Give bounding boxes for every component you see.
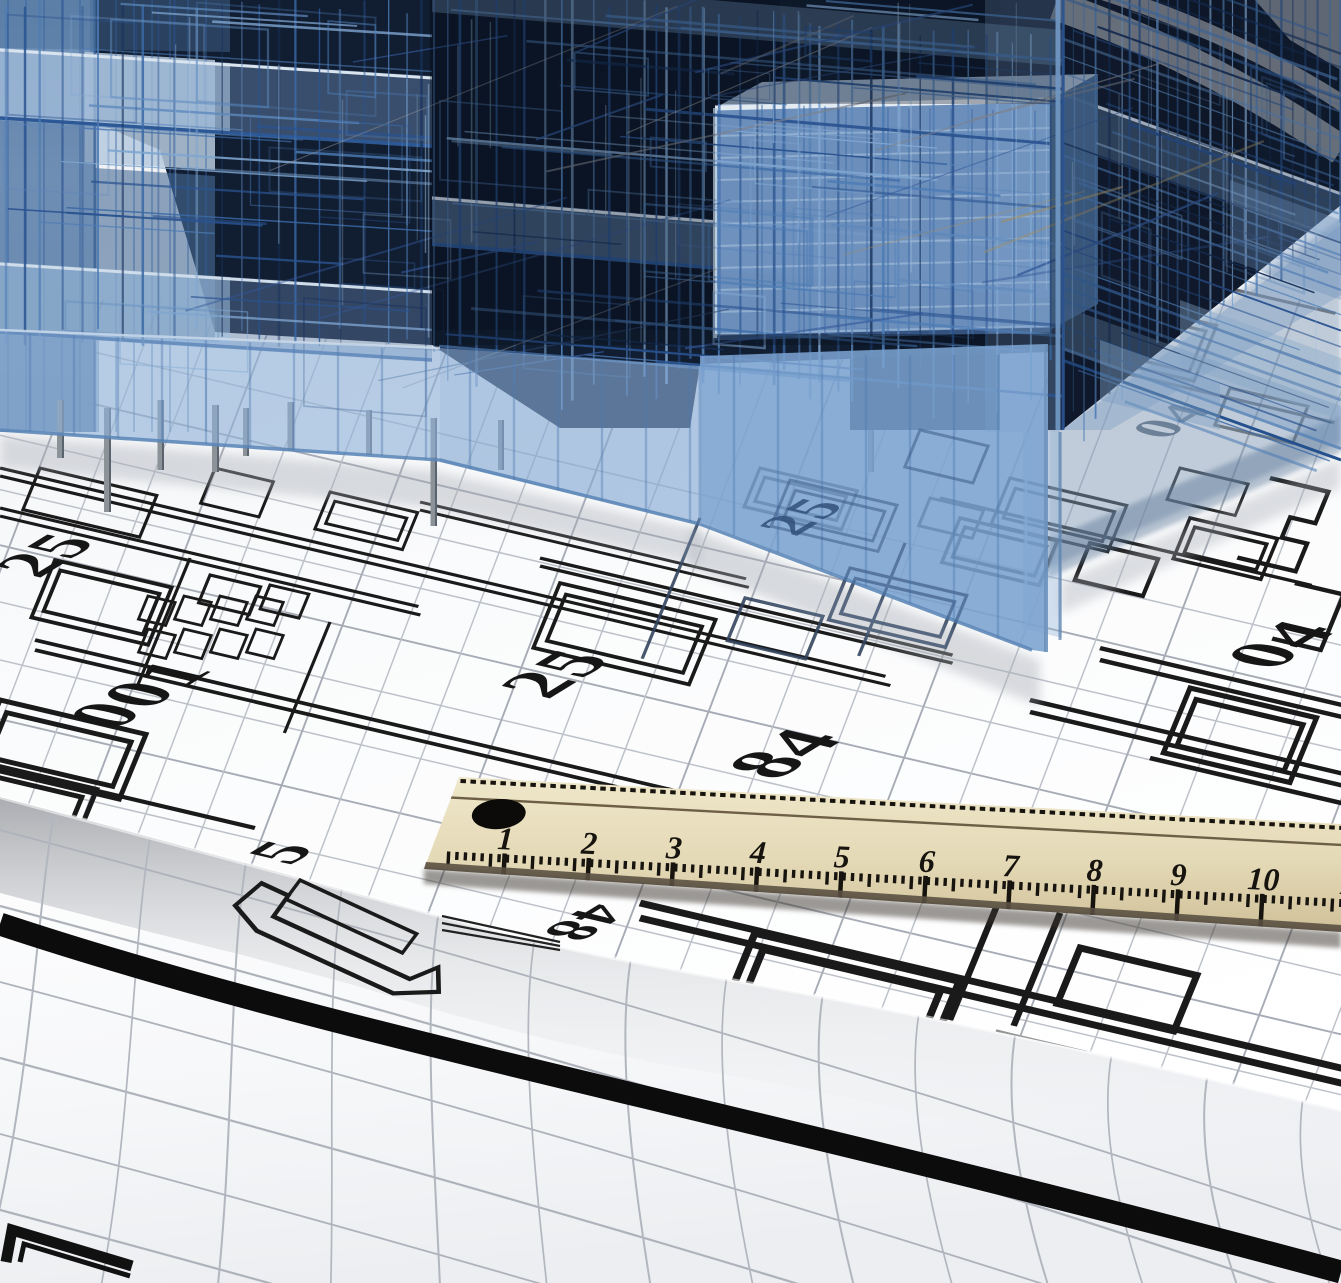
svg-text:10: 10	[1246, 860, 1280, 898]
svg-text:8: 8	[1086, 851, 1104, 888]
svg-text:6: 6	[918, 843, 936, 880]
svg-text:1: 1	[497, 820, 515, 857]
svg-text:5: 5	[833, 838, 851, 875]
svg-text:4: 4	[748, 833, 767, 870]
svg-text:9: 9	[1170, 856, 1188, 893]
svg-text:2: 2	[579, 825, 598, 862]
svg-text:3: 3	[664, 829, 683, 866]
